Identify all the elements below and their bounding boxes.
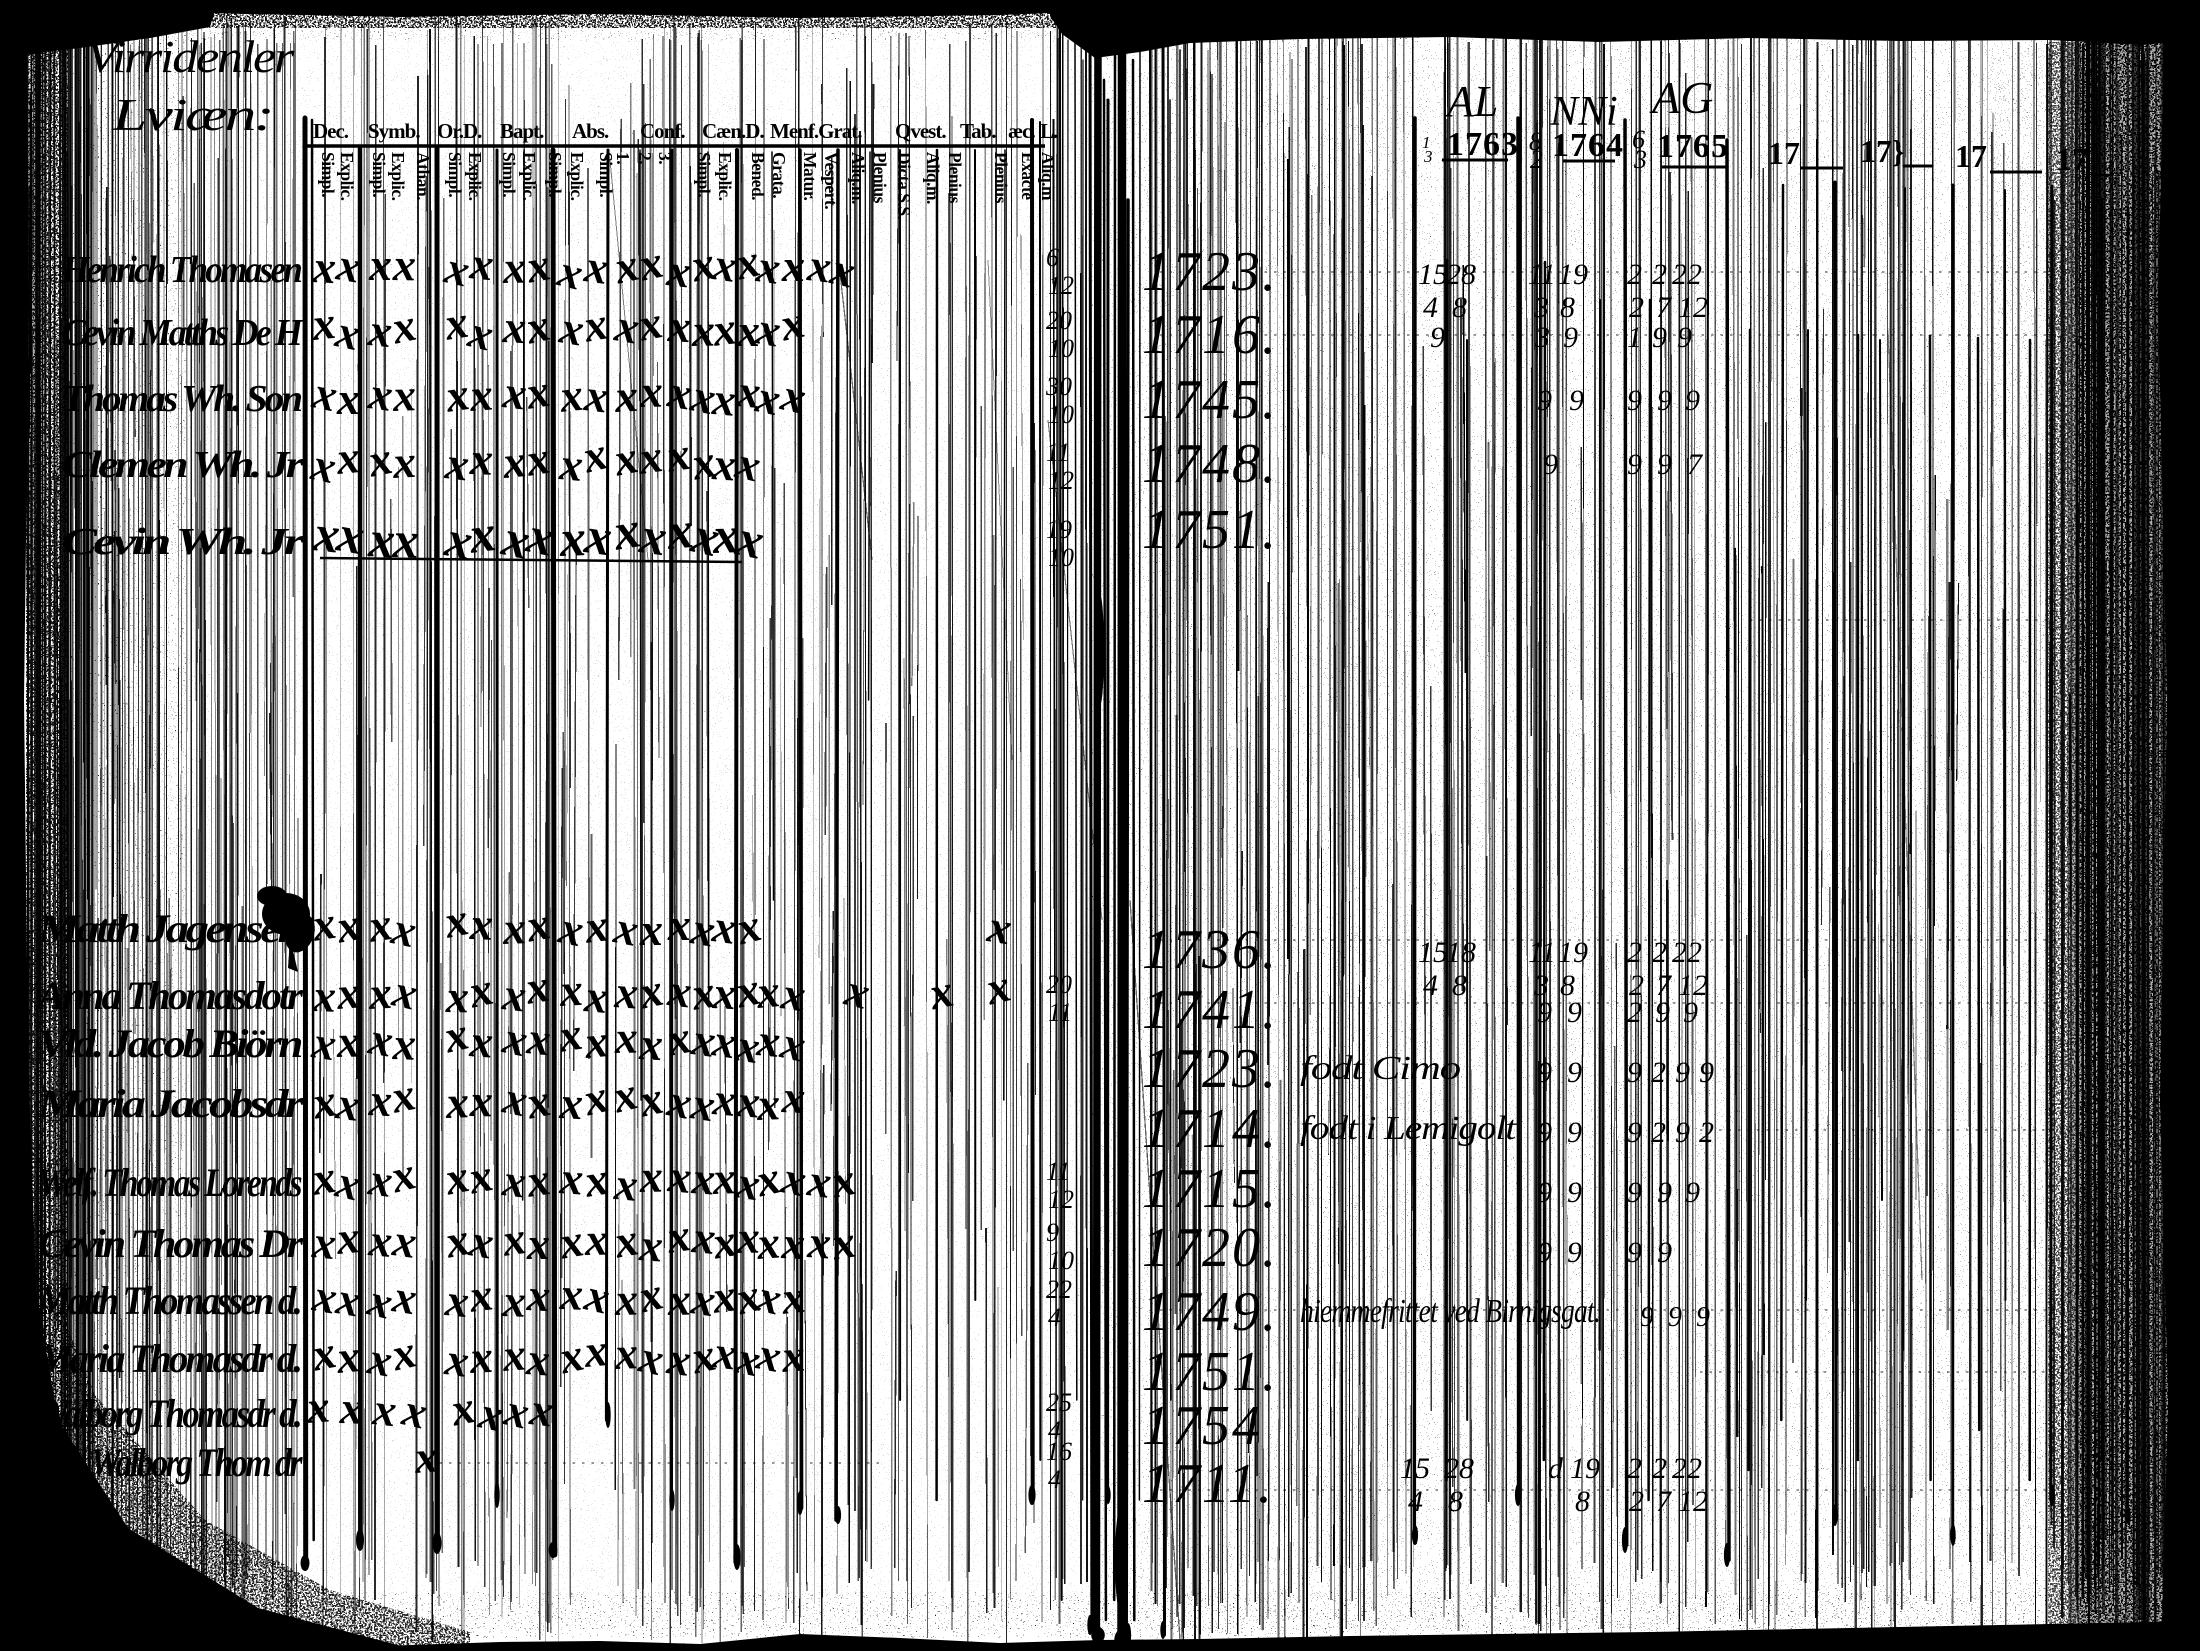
svg-text:Lviæn:: Lviæn: xyxy=(111,89,272,140)
svg-text:16: 16 xyxy=(1046,1437,1072,1466)
svg-text:9: 9 xyxy=(1627,1236,1642,1269)
svg-text:9: 9 xyxy=(1657,384,1672,417)
svg-text:x: x xyxy=(467,368,494,421)
svg-text:Simpl.: Simpl. xyxy=(369,152,389,197)
svg-text:x: x xyxy=(638,366,663,417)
svg-text:Conf.: Conf. xyxy=(640,119,685,143)
svg-text:Simpl.: Simpl. xyxy=(596,152,616,197)
svg-text:2: 2 xyxy=(1652,936,1667,969)
svg-text:Thomas Wh. Son: Thomas Wh. Son xyxy=(62,378,302,420)
svg-text:9: 9 xyxy=(1567,1056,1582,1089)
svg-text:L.: L. xyxy=(1040,119,1058,143)
svg-text:9: 9 xyxy=(1627,1056,1642,1089)
svg-text:1765: 1765 xyxy=(1657,128,1729,165)
svg-text:Explic.: Explic. xyxy=(388,152,408,201)
svg-text:1745.: 1745. xyxy=(1142,369,1278,431)
svg-text:d: d xyxy=(1548,1452,1564,1485)
svg-text:20: 20 xyxy=(1046,970,1072,999)
svg-text:9: 9 xyxy=(1430,321,1445,354)
svg-text:17: 17 xyxy=(2056,141,2088,177)
svg-text:1751.: 1751. xyxy=(1142,1341,1278,1403)
svg-text:x: x xyxy=(333,1211,361,1264)
svg-text:x: x xyxy=(334,1330,362,1383)
svg-text:Exacte: Exacte xyxy=(1018,152,1038,200)
svg-text:2: 2 xyxy=(1651,1116,1666,1149)
svg-text:9: 9 xyxy=(1675,1116,1690,1149)
svg-text:17: 17 xyxy=(1955,138,1987,174)
svg-text:x: x xyxy=(468,433,494,485)
svg-text:Explic.: Explic. xyxy=(337,152,357,201)
svg-text:1: 1 xyxy=(1627,321,1642,354)
svg-text:9: 9 xyxy=(1537,996,1552,1029)
svg-text:x: x xyxy=(754,965,782,1018)
svg-text:12: 12 xyxy=(1678,1485,1708,1518)
svg-text:1715.: 1715. xyxy=(1142,1158,1278,1220)
svg-text:Clemen Wh. Jr: Clemen Wh. Jr xyxy=(62,444,305,486)
svg-text:15: 15 xyxy=(1418,258,1448,291)
svg-text:fodt Cimo: fodt Cimo xyxy=(1300,1050,1460,1087)
svg-text:Maria Thomasdr d.: Maria Thomasdr d. xyxy=(37,1336,300,1381)
svg-text:x: x xyxy=(336,1016,361,1067)
svg-text:x: x xyxy=(311,970,337,1022)
svg-text:x: x xyxy=(781,240,805,291)
svg-text:x: x xyxy=(526,1218,550,1269)
svg-text:x: x xyxy=(754,1216,781,1269)
svg-text:Simpl.: Simpl. xyxy=(499,152,519,197)
svg-text:x: x xyxy=(525,1269,552,1321)
svg-text:7: 7 xyxy=(1656,1485,1673,1518)
svg-text:Symb.: Symb. xyxy=(368,119,420,143)
svg-text:AL: AL xyxy=(1444,77,1498,126)
svg-text:15: 15 xyxy=(1400,1452,1430,1485)
svg-text:Cevin Wh. Jr: Cevin Wh. Jr xyxy=(62,521,306,563)
svg-text:9: 9 xyxy=(1567,1116,1582,1149)
svg-text:x: x xyxy=(583,1214,608,1265)
svg-text:9: 9 xyxy=(1652,321,1667,354)
svg-text:4: 4 xyxy=(1048,1303,1061,1332)
svg-text:3: 3 xyxy=(1633,145,1647,174)
svg-text:Simpl.: Simpl. xyxy=(445,152,465,197)
svg-text:30: 30 xyxy=(1045,372,1072,401)
svg-text:9: 9 xyxy=(1046,1218,1059,1247)
svg-text:x: x xyxy=(639,904,663,955)
svg-text:2: 2 xyxy=(1699,1116,1714,1149)
svg-text:Henrich Thomasen: Henrich Thomasen xyxy=(61,249,302,291)
svg-text:9: 9 xyxy=(1640,1302,1654,1333)
svg-text:9: 9 xyxy=(1696,1302,1710,1333)
svg-text:x: x xyxy=(412,1430,439,1483)
svg-text:17: 17 xyxy=(1768,135,1800,171)
svg-text:1720.: 1720. xyxy=(1142,1217,1278,1279)
svg-text:8: 8 xyxy=(1560,291,1575,324)
svg-text:12: 12 xyxy=(1678,291,1708,324)
svg-text:9: 9 xyxy=(1685,384,1700,417)
svg-text:9: 9 xyxy=(1567,1236,1582,1269)
svg-text:12: 12 xyxy=(1048,271,1074,300)
svg-text:22: 22 xyxy=(1672,936,1702,969)
svg-text:Plenius: Plenius xyxy=(945,152,965,204)
svg-text:x: x xyxy=(612,1158,640,1211)
svg-text:x: x xyxy=(392,239,417,290)
svg-text:x: x xyxy=(468,898,494,950)
svg-text:2: 2 xyxy=(1652,1452,1667,1485)
svg-text:9: 9 xyxy=(1543,448,1558,481)
svg-text:1714.: 1714. xyxy=(1142,1098,1278,1160)
svg-text:Dec.: Dec. xyxy=(313,119,349,143)
svg-text:x: x xyxy=(444,1076,470,1128)
svg-text:9: 9 xyxy=(1537,1176,1552,1209)
svg-text:9: 9 xyxy=(1677,321,1692,354)
svg-text:Aliq.m.: Aliq.m. xyxy=(923,152,943,204)
svg-text:Matur.: Matur. xyxy=(800,152,820,200)
svg-text:x: x xyxy=(638,1151,663,1202)
svg-text:9: 9 xyxy=(1537,1236,1552,1269)
svg-text:25: 25 xyxy=(1046,1388,1072,1417)
svg-text:11: 11 xyxy=(1046,438,1070,467)
svg-text:11: 11 xyxy=(1528,936,1556,969)
svg-text:10: 10 xyxy=(1048,400,1074,429)
svg-text:x: x xyxy=(582,1015,610,1068)
svg-text:1748.: 1748. xyxy=(1142,433,1278,495)
svg-text:9: 9 xyxy=(1567,996,1582,1029)
svg-text:Vld. Jacob Biörn: Vld. Jacob Biörn xyxy=(38,1021,302,1066)
svg-text:4: 4 xyxy=(1423,291,1438,324)
svg-text:x: x xyxy=(391,436,418,488)
svg-text:19: 19 xyxy=(1570,1452,1600,1485)
svg-text:9: 9 xyxy=(1657,1236,1672,1269)
svg-text:2: 2 xyxy=(1652,258,1667,291)
svg-text:9: 9 xyxy=(1685,1176,1700,1209)
svg-text:4: 4 xyxy=(1048,1465,1061,1494)
svg-text:3: 3 xyxy=(1534,321,1550,354)
svg-text:9: 9 xyxy=(1655,996,1670,1029)
svg-text:19: 19 xyxy=(1558,936,1588,969)
svg-text:18: 18 xyxy=(1446,936,1476,969)
svg-text:2: 2 xyxy=(1629,291,1644,324)
svg-text:Athan.: Athan. xyxy=(413,152,433,200)
svg-text:x: x xyxy=(391,369,417,421)
svg-text:1711.: 1711. xyxy=(1142,1453,1274,1515)
svg-text:11: 11 xyxy=(1048,998,1072,1027)
svg-text:9: 9 xyxy=(1537,1116,1552,1149)
svg-text:x: x xyxy=(338,1382,364,1434)
svg-text:2: 2 xyxy=(1629,1485,1644,1518)
svg-text:Bened.: Bened. xyxy=(748,152,768,200)
svg-text:11: 11 xyxy=(1528,258,1556,291)
svg-text:19: 19 xyxy=(1046,515,1072,544)
svg-text:x: x xyxy=(780,1217,807,1269)
svg-text:2: 2 xyxy=(1627,936,1642,969)
svg-text:1723.: 1723. xyxy=(1142,1038,1278,1100)
svg-text:2: 2 xyxy=(1627,996,1642,1029)
svg-text:9: 9 xyxy=(1657,1176,1672,1209)
svg-text:x: x xyxy=(468,1331,495,1383)
svg-text:8: 8 xyxy=(1452,291,1467,324)
svg-text:x: x xyxy=(500,1328,527,1381)
svg-text:Plenius: Plenius xyxy=(870,152,890,204)
svg-text:22: 22 xyxy=(1672,258,1702,291)
svg-text:7: 7 xyxy=(1687,448,1704,481)
svg-text:1764: 1764 xyxy=(1552,127,1624,164)
svg-text:Matth Thomassen d.: Matth Thomassen d. xyxy=(37,1278,300,1323)
svg-text:4: 4 xyxy=(1423,969,1438,1002)
svg-text:x: x xyxy=(710,1073,738,1126)
svg-text:x: x xyxy=(467,1015,494,1068)
svg-text:x: x xyxy=(368,239,392,290)
svg-text:Cevin Thomas Dr: Cevin Thomas Dr xyxy=(38,1221,304,1266)
svg-text:Explic.: Explic. xyxy=(715,152,735,201)
svg-text:Qvest.: Qvest. xyxy=(895,119,946,143)
svg-text:9: 9 xyxy=(1537,1056,1552,1089)
svg-text:Walborg Thomasdr d.: Walborg Thomasdr d. xyxy=(38,1391,300,1436)
svg-text:x: x xyxy=(304,1380,331,1433)
svg-text:1741.: 1741. xyxy=(1142,979,1278,1041)
svg-text:2: 2 xyxy=(1627,1452,1642,1485)
svg-text:9: 9 xyxy=(1627,448,1642,481)
svg-text:x: x xyxy=(336,373,360,424)
svg-text:Plenius: Plenius xyxy=(991,152,1011,204)
svg-text:10: 10 xyxy=(1048,543,1074,572)
svg-text:x: x xyxy=(391,1018,417,1070)
svg-text:1716.: 1716. xyxy=(1142,304,1278,366)
svg-text:1736.: 1736. xyxy=(1142,919,1278,981)
svg-text:1723.: 1723. xyxy=(1142,241,1278,303)
svg-text:x: x xyxy=(780,1071,807,1123)
svg-text:1763: 1763 xyxy=(1447,126,1519,163)
svg-text:x: x xyxy=(755,1078,781,1130)
svg-text:Aliq.m.: Aliq.m. xyxy=(848,152,868,204)
svg-text:x: x xyxy=(558,1268,584,1320)
svg-text:9: 9 xyxy=(1627,1176,1642,1209)
svg-text:19: 19 xyxy=(1558,258,1588,291)
svg-text:9: 9 xyxy=(1675,1056,1690,1089)
svg-text:2: 2 xyxy=(1627,258,1642,291)
svg-text:9: 9 xyxy=(1567,1176,1582,1209)
svg-text:x: x xyxy=(469,1075,494,1126)
svg-text:17}: 17} xyxy=(1860,133,1905,169)
svg-text:15: 15 xyxy=(1418,936,1448,969)
svg-text:Welf. Thomas Lorends: Welf. Thomas Lorends xyxy=(38,1160,302,1205)
svg-text:22: 22 xyxy=(1672,1452,1702,1485)
svg-text:3: 3 xyxy=(1423,147,1433,166)
svg-text:1751.: 1751. xyxy=(1142,499,1278,561)
svg-text:x: x xyxy=(581,1324,609,1377)
svg-text:x: x xyxy=(613,1327,639,1379)
svg-text:2.: 2. xyxy=(635,152,655,164)
svg-text:Tab.: Tab. xyxy=(960,119,996,143)
svg-text:Abs.: Abs. xyxy=(572,119,609,143)
svg-text:Dicta S.S.: Dicta S.S. xyxy=(894,152,914,220)
svg-text:Explic.: Explic. xyxy=(519,152,539,201)
svg-text:9: 9 xyxy=(1627,1116,1642,1149)
svg-text:22: 22 xyxy=(1046,1275,1072,1304)
svg-text:x: x xyxy=(524,1333,551,1386)
svg-text:9: 9 xyxy=(1699,1056,1714,1089)
svg-text:20: 20 xyxy=(1046,306,1072,335)
svg-text:hiemmefrittet ved Birnigsgat.: hiemmefrittet ved Birnigsgat. xyxy=(1300,1293,1600,1330)
svg-text:Menf.Grat.: Menf.Grat. xyxy=(770,119,862,143)
svg-text:9: 9 xyxy=(1563,321,1578,354)
svg-text:x: x xyxy=(334,966,361,1019)
svg-text:Simpl.: Simpl. xyxy=(318,152,338,197)
svg-text:x: x xyxy=(637,1219,664,1272)
svg-text:x: x xyxy=(665,1150,693,1203)
svg-text:7: 7 xyxy=(1656,291,1673,324)
svg-text:Cevin Matths De H: Cevin Matths De H xyxy=(62,312,304,354)
svg-text:Maria Jacobsdr: Maria Jacobsdr xyxy=(37,1081,304,1126)
svg-text:9: 9 xyxy=(1668,1302,1682,1333)
svg-text:2: 2 xyxy=(1530,145,1543,174)
svg-text:1.: 1. xyxy=(613,152,633,164)
svg-text:1754: 1754 xyxy=(1142,1395,1262,1457)
svg-text:x: x xyxy=(333,431,361,484)
svg-text:8: 8 xyxy=(1575,1485,1590,1518)
svg-text:Or.D.: Or.D. xyxy=(437,119,482,143)
svg-text:Bapt.: Bapt. xyxy=(500,119,544,143)
svg-text:x: x xyxy=(613,370,640,422)
svg-text:9: 9 xyxy=(1657,448,1672,481)
svg-text:6: 6 xyxy=(1046,243,1059,272)
svg-text:8: 8 xyxy=(1452,969,1467,1002)
svg-text:9: 9 xyxy=(1569,384,1584,417)
svg-text:x: x xyxy=(613,1012,638,1063)
svg-text:9: 9 xyxy=(1537,384,1552,417)
svg-text:1749.: 1749. xyxy=(1142,1281,1278,1343)
svg-text:Simpl.: Simpl. xyxy=(694,152,714,197)
svg-text:28: 28 xyxy=(1444,1452,1474,1485)
svg-text:x: x xyxy=(710,373,738,426)
svg-text:3: 3 xyxy=(1533,291,1549,324)
svg-text:Explic.: Explic. xyxy=(465,152,485,201)
svg-text:2: 2 xyxy=(1651,1056,1666,1089)
svg-text:12: 12 xyxy=(1048,466,1074,495)
svg-text:12: 12 xyxy=(1048,1185,1074,1214)
svg-text:8: 8 xyxy=(1448,1485,1463,1518)
svg-text:9: 9 xyxy=(1627,384,1642,417)
svg-text:4: 4 xyxy=(1408,1485,1423,1518)
svg-text:x: x xyxy=(667,1274,692,1325)
svg-text:x: x xyxy=(779,1329,806,1382)
svg-text:x: x xyxy=(667,899,691,950)
svg-text:x: x xyxy=(391,512,420,570)
svg-text:x: x xyxy=(711,1152,737,1204)
svg-text:x: x xyxy=(501,1275,527,1327)
svg-text:9: 9 xyxy=(1683,996,1698,1029)
svg-text:28: 28 xyxy=(1446,258,1476,291)
svg-text:Anna Thomasdotr: Anna Thomasdotr xyxy=(35,973,304,1018)
svg-text:x: x xyxy=(666,300,693,352)
svg-text:x: x xyxy=(638,1018,665,1070)
svg-text:10: 10 xyxy=(1048,334,1074,363)
svg-text:AG: AG xyxy=(1649,72,1713,123)
svg-text:fodt i Lemigolt: fodt i Lemigolt xyxy=(1300,1110,1518,1147)
svg-text:11: 11 xyxy=(1046,1157,1070,1186)
svg-text:Explic.: Explic. xyxy=(567,152,587,201)
svg-text:Cæn.D.: Cæn.D. xyxy=(702,119,764,143)
svg-text:x: x xyxy=(502,242,527,293)
svg-text:10: 10 xyxy=(1048,1246,1074,1275)
